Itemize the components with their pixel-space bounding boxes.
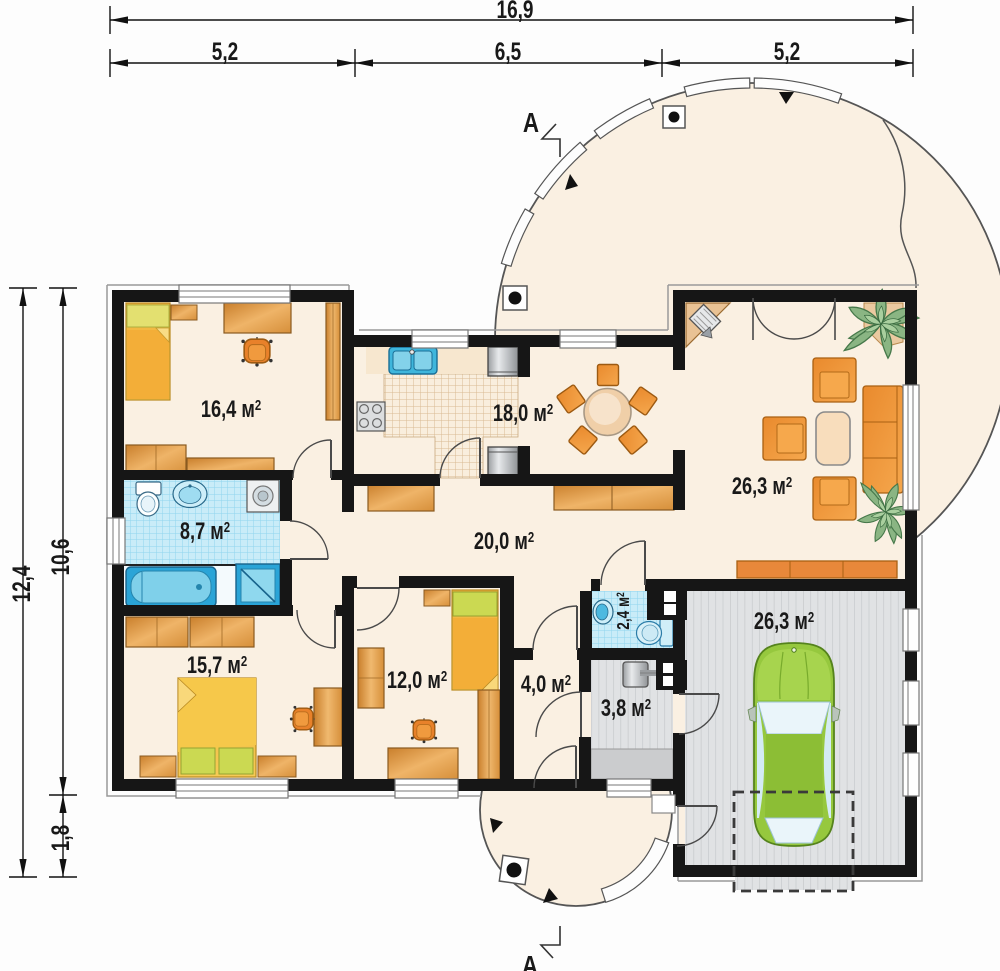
svg-text:20,0 м2: 20,0 м2: [474, 528, 534, 555]
svg-text:15,7 м2: 15,7 м2: [187, 652, 247, 679]
svg-text:26,3 м2: 26,3 м2: [732, 473, 792, 500]
svg-text:1,8: 1,8: [46, 825, 74, 851]
svg-text:16,9: 16,9: [497, 0, 534, 24]
svg-text:A: A: [523, 108, 539, 139]
svg-text:2,4 м2: 2,4 м2: [614, 592, 633, 630]
svg-text:8,7 м2: 8,7 м2: [180, 518, 230, 545]
svg-text:A: A: [522, 951, 538, 971]
svg-text:5,2: 5,2: [774, 37, 800, 65]
svg-text:16,4 м2: 16,4 м2: [201, 396, 261, 423]
svg-text:4,0 м2: 4,0 м2: [521, 671, 571, 698]
svg-text:18,0 м2: 18,0 м2: [493, 400, 553, 427]
svg-text:12,0 м2: 12,0 м2: [387, 667, 447, 694]
svg-text:3,8 м2: 3,8 м2: [601, 695, 651, 722]
svg-text:26,3 м2: 26,3 м2: [754, 608, 814, 635]
svg-text:12,4: 12,4: [7, 565, 35, 603]
svg-text:6,5: 6,5: [495, 37, 521, 65]
svg-text:10,6: 10,6: [46, 539, 74, 576]
svg-text:5,2: 5,2: [212, 37, 238, 65]
